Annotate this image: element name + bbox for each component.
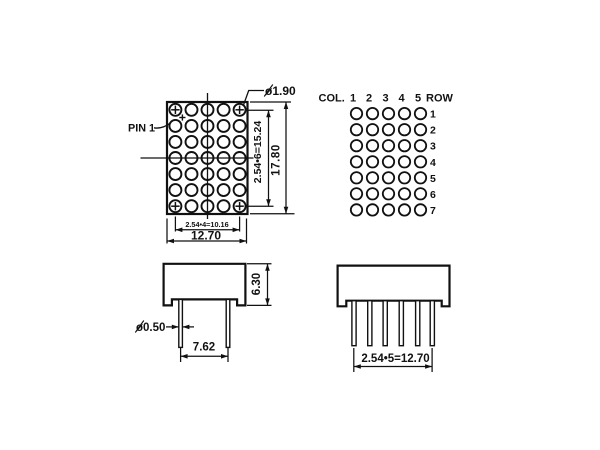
svg-text:6.30: 6.30 (251, 273, 263, 295)
svg-text:3: 3 (382, 93, 388, 105)
svg-text:2.54•5=12.70: 2.54•5=12.70 (361, 353, 429, 365)
svg-text:5: 5 (430, 173, 436, 185)
svg-text:2.54•6=15.24: 2.54•6=15.24 (252, 121, 264, 184)
svg-text:1: 1 (350, 93, 356, 105)
svg-text:7.62: 7.62 (193, 342, 215, 354)
svg-text:PIN 1: PIN 1 (128, 122, 155, 134)
svg-text:2: 2 (366, 93, 372, 105)
svg-text:COL.: COL. (319, 93, 345, 105)
svg-text:4: 4 (398, 93, 405, 105)
svg-text:ROW: ROW (426, 93, 454, 105)
svg-text:5: 5 (415, 93, 421, 105)
svg-text:3: 3 (430, 141, 436, 153)
svg-text:2: 2 (430, 125, 436, 137)
svg-text:ø1.90: ø1.90 (265, 84, 296, 98)
svg-text:4: 4 (430, 157, 436, 169)
svg-text:1: 1 (430, 109, 436, 121)
svg-text:ø0.50: ø0.50 (136, 322, 165, 334)
svg-text:17.80: 17.80 (271, 144, 283, 176)
svg-text:6: 6 (430, 189, 436, 201)
svg-text:7: 7 (430, 205, 436, 217)
svg-text:12.70: 12.70 (191, 229, 221, 243)
